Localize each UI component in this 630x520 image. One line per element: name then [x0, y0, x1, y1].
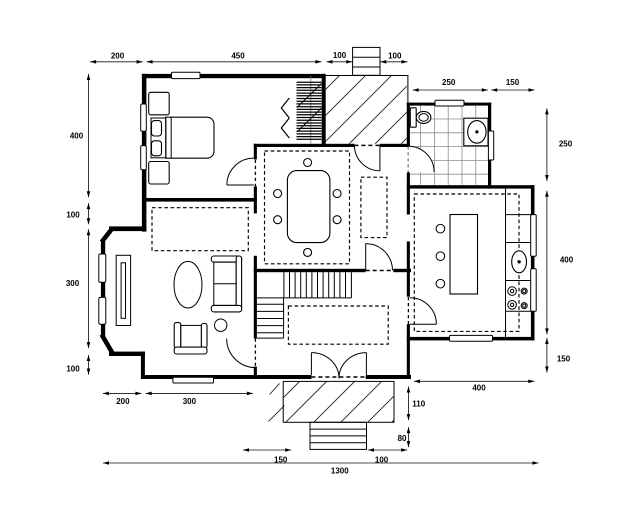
svg-text:250: 250: [442, 78, 456, 87]
svg-text:100: 100: [66, 365, 80, 374]
svg-text:110: 110: [412, 399, 425, 408]
svg-text:200: 200: [116, 397, 130, 406]
svg-text:80: 80: [398, 434, 407, 443]
svg-text:250: 250: [559, 140, 573, 149]
svg-text:1300: 1300: [331, 467, 349, 476]
svg-text:200: 200: [111, 51, 125, 60]
svg-text:300: 300: [183, 397, 197, 406]
svg-text:150: 150: [506, 78, 520, 87]
svg-text:400: 400: [560, 256, 574, 265]
svg-text:450: 450: [231, 51, 245, 60]
svg-text:400: 400: [70, 132, 84, 141]
svg-text:100: 100: [388, 51, 402, 60]
svg-text:150: 150: [557, 354, 571, 363]
svg-text:400: 400: [472, 383, 486, 392]
svg-text:100: 100: [66, 211, 80, 220]
svg-text:100: 100: [333, 51, 347, 60]
svg-text:300: 300: [66, 279, 80, 288]
